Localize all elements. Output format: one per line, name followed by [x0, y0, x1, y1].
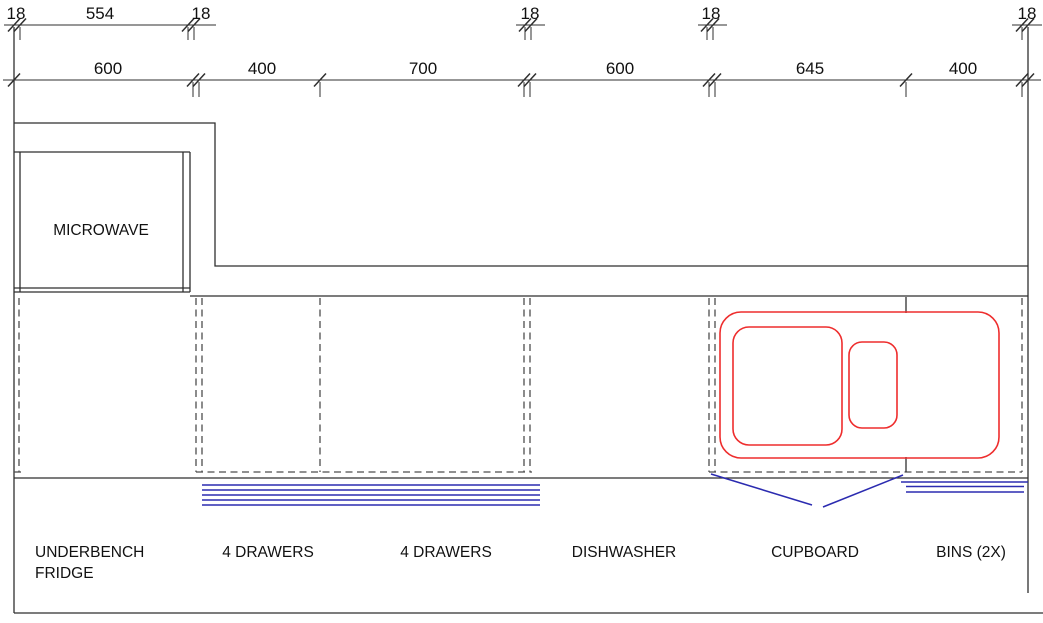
label-cupboard: CUPBOARD	[771, 544, 859, 561]
bench-outline	[14, 27, 1043, 613]
dim-panel-2: 18	[192, 4, 211, 23]
label-fridge-line1: UNDERBENCH	[35, 544, 144, 561]
dim-panel-5: 18	[1018, 4, 1037, 23]
cupboard-door-swing-lines	[711, 474, 903, 507]
dim-cupboard-width: 645	[796, 59, 824, 78]
dim-panel-1: 18	[7, 4, 26, 23]
cabinet-labels: UNDERBENCH FRIDGE 4 DRAWERS 4 DRAWERS DI…	[35, 544, 1006, 582]
dim-bins-width: 400	[949, 59, 977, 78]
sink-bowl-half	[849, 342, 897, 428]
sink-rim	[720, 312, 999, 458]
sink-bowl-main	[733, 327, 842, 445]
dim-panel-3: 18	[521, 4, 540, 23]
dimension-row-panels: 18 554 18 18 18 18	[4, 4, 1042, 40]
kitchen-elevation-drawing: 18 554 18 18 18 18	[0, 0, 1043, 623]
drawer-vent-lines	[202, 485, 540, 505]
label-fridge-line2: FRIDGE	[35, 565, 94, 582]
dimension-row-cabinet-widths: 600 400 700 600 645 400	[3, 59, 1041, 97]
sink-outline	[720, 312, 999, 458]
dim-microwave-nook: 554	[86, 4, 114, 23]
label-dishwasher: DISHWASHER	[572, 544, 677, 561]
dim-panel-4: 18	[702, 4, 721, 23]
label-microwave: MICROWAVE	[53, 222, 149, 239]
dim-drawers2-width: 700	[409, 59, 437, 78]
dimension-extensions-main	[193, 82, 1022, 97]
dim-fridge-width: 600	[94, 59, 122, 78]
splashback-profile-line	[14, 123, 1028, 266]
microwave-box: MICROWAVE	[14, 152, 190, 292]
dim-drawers1-width: 400	[248, 59, 276, 78]
label-drawers-left: 4 DRAWERS	[222, 544, 314, 561]
label-drawers-right: 4 DRAWERS	[400, 544, 492, 561]
cad-drawing-canvas: 18 554 18 18 18 18	[0, 0, 1043, 623]
label-bins: BINS (2X)	[936, 544, 1006, 561]
dim-dishwasher-width: 600	[606, 59, 634, 78]
cabinet-dashed-lines	[14, 298, 1022, 472]
bin-slide-lines	[901, 482, 1028, 492]
